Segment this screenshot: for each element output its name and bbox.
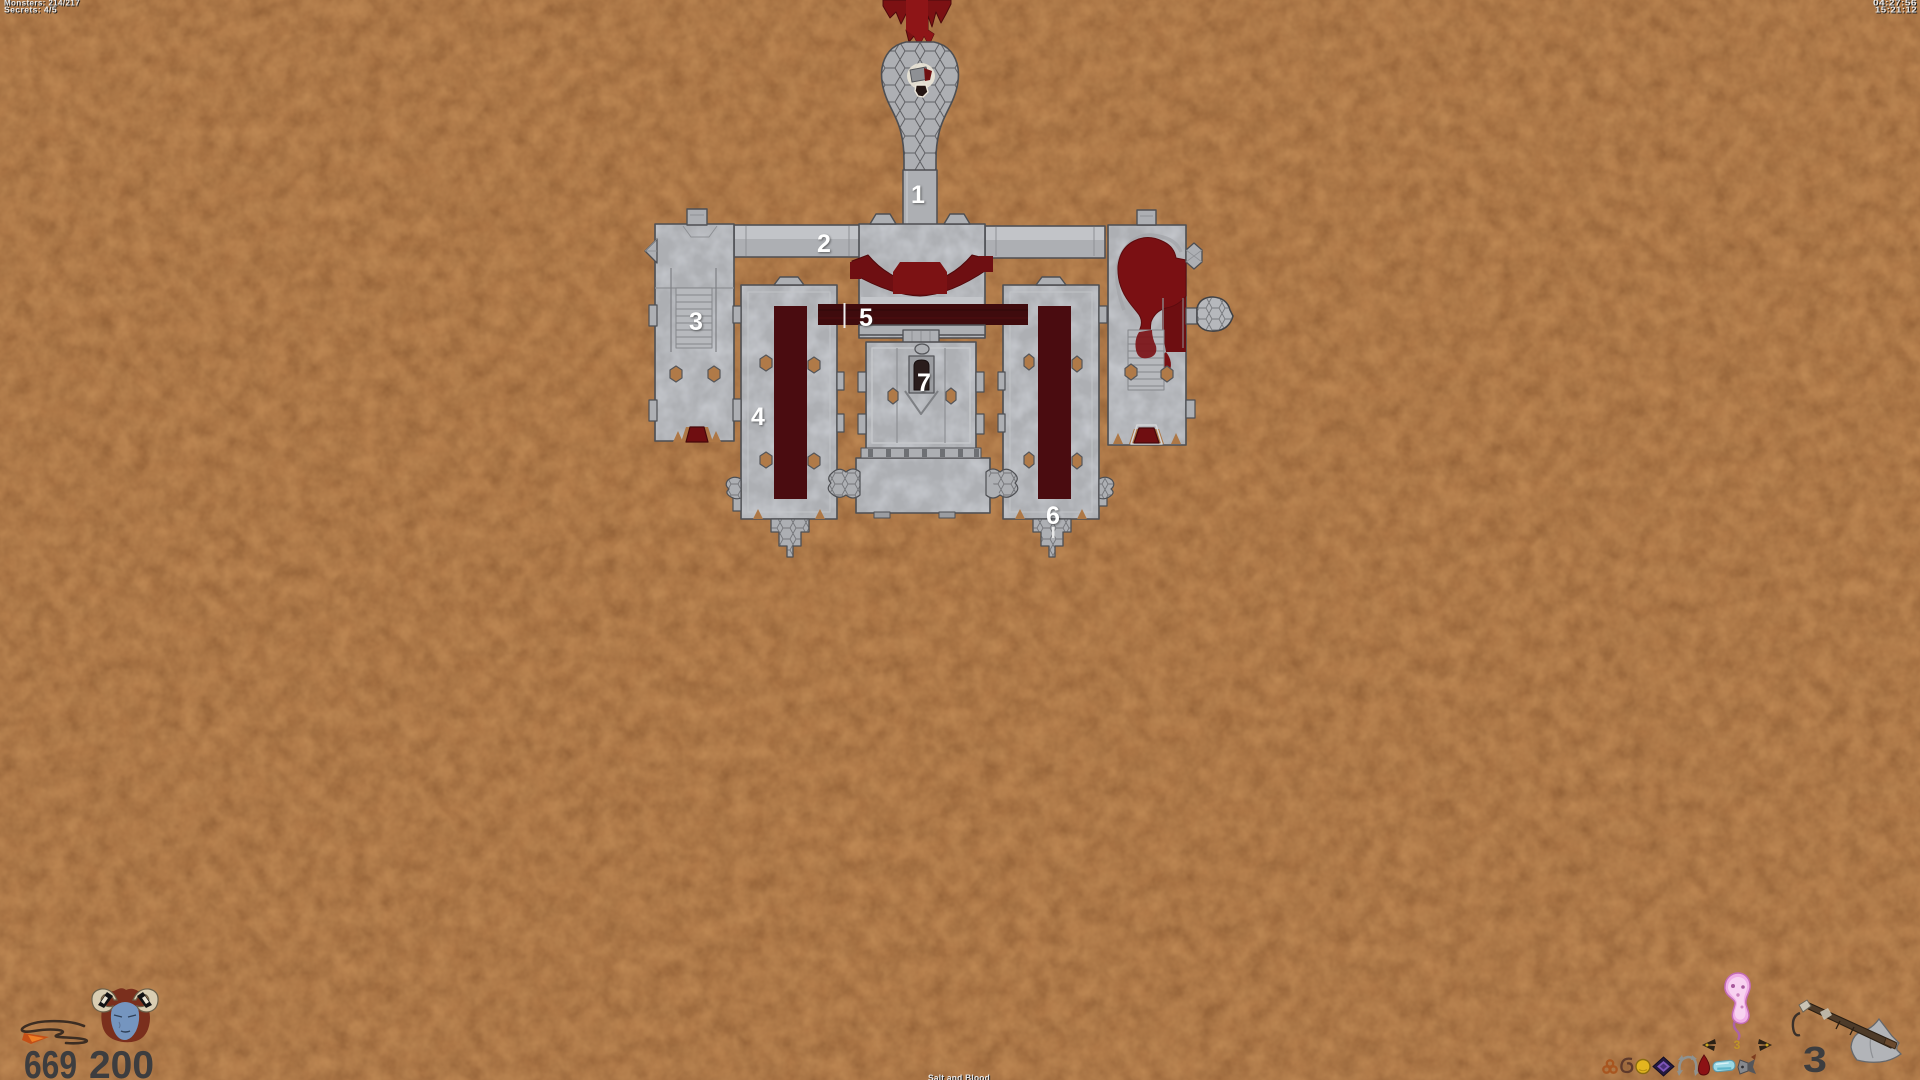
svg-text:4: 4	[751, 403, 765, 431]
svg-text:2: 2	[817, 230, 831, 258]
svg-text:3: 3	[1803, 1039, 1827, 1080]
svg-text:Salt and Blood: Salt and Blood	[928, 1073, 990, 1080]
svg-text:669: 669	[24, 1044, 77, 1080]
svg-text:5: 5	[859, 304, 873, 332]
svg-text:200: 200	[89, 1044, 154, 1080]
svg-text:7: 7	[917, 369, 931, 397]
svg-text:3: 3	[1734, 1038, 1741, 1052]
svg-text:6: 6	[1046, 502, 1060, 530]
svg-text:3: 3	[689, 308, 703, 336]
svg-text:1: 1	[911, 181, 925, 209]
svg-text:15:21:12: 15:21:12	[1875, 5, 1917, 15]
svg-text:Secrets: 4/5: Secrets: 4/5	[4, 5, 57, 15]
